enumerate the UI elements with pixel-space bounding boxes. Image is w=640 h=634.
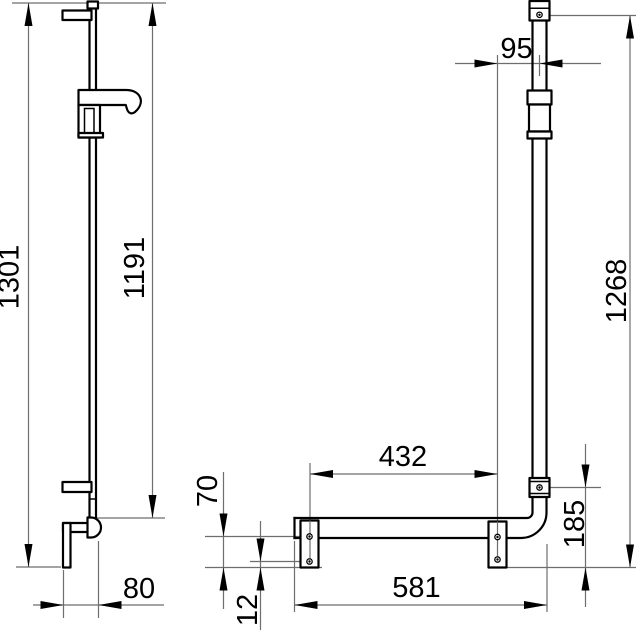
slider-bottom-band (528, 132, 552, 139)
arrow-12-bottom (257, 568, 265, 591)
screw-holes (307, 12, 542, 564)
arrow-581-right (524, 601, 547, 609)
arrow-12-top (257, 539, 265, 562)
dim-label-1268: 1268 (601, 259, 633, 324)
dim-label-432: 432 (379, 441, 427, 473)
dim-label-1301: 1301 (0, 245, 26, 310)
arrow-1268-bottom (626, 545, 634, 568)
arrow-1301-top (25, 3, 33, 26)
arrow-1301-bottom (25, 544, 33, 567)
grab-bar-end-dome (88, 518, 102, 538)
slider-mid-section (529, 105, 550, 132)
arrow-70-bottom (220, 568, 228, 591)
dim-label-95: 95 (500, 33, 532, 65)
rail-top-cap (88, 2, 99, 9)
arrow-1191-top (149, 3, 157, 26)
dim-label-12: 12 (232, 594, 264, 626)
wall-mount-plate-side (63, 523, 71, 568)
arrow-80-right (99, 601, 122, 609)
slider-top-band (528, 91, 552, 105)
arrow-432-right (475, 470, 498, 478)
dimension-drawing: 1301 1191 80 95 1268 432 70 185 581 12 (0, 0, 640, 634)
dim-label-70: 70 (192, 475, 224, 507)
dim-label-1191: 1191 (119, 237, 151, 299)
arrow-70-top (220, 514, 228, 537)
arrow-432-left (310, 470, 333, 478)
technical-drawing-page: 1301 1191 80 95 1268 432 70 185 581 12 (0, 0, 640, 634)
upper-wall-bracket-arm (63, 11, 92, 21)
arrow-185-top (582, 465, 590, 488)
dim-label-581: 581 (392, 572, 440, 604)
arrow-1268-top (626, 16, 634, 39)
arrow-581-left (295, 601, 318, 609)
lower-wall-bracket-arm (63, 482, 92, 492)
dim-label-185: 185 (559, 500, 591, 548)
arrow-95-left (475, 60, 498, 68)
arrow-95-right (540, 60, 563, 68)
arrow-185-bottom (582, 568, 590, 591)
arrow-1191-bottom (149, 495, 157, 518)
dim-label-80: 80 (123, 573, 155, 605)
front-view (295, 1, 552, 568)
arrow-80-left (41, 601, 64, 609)
